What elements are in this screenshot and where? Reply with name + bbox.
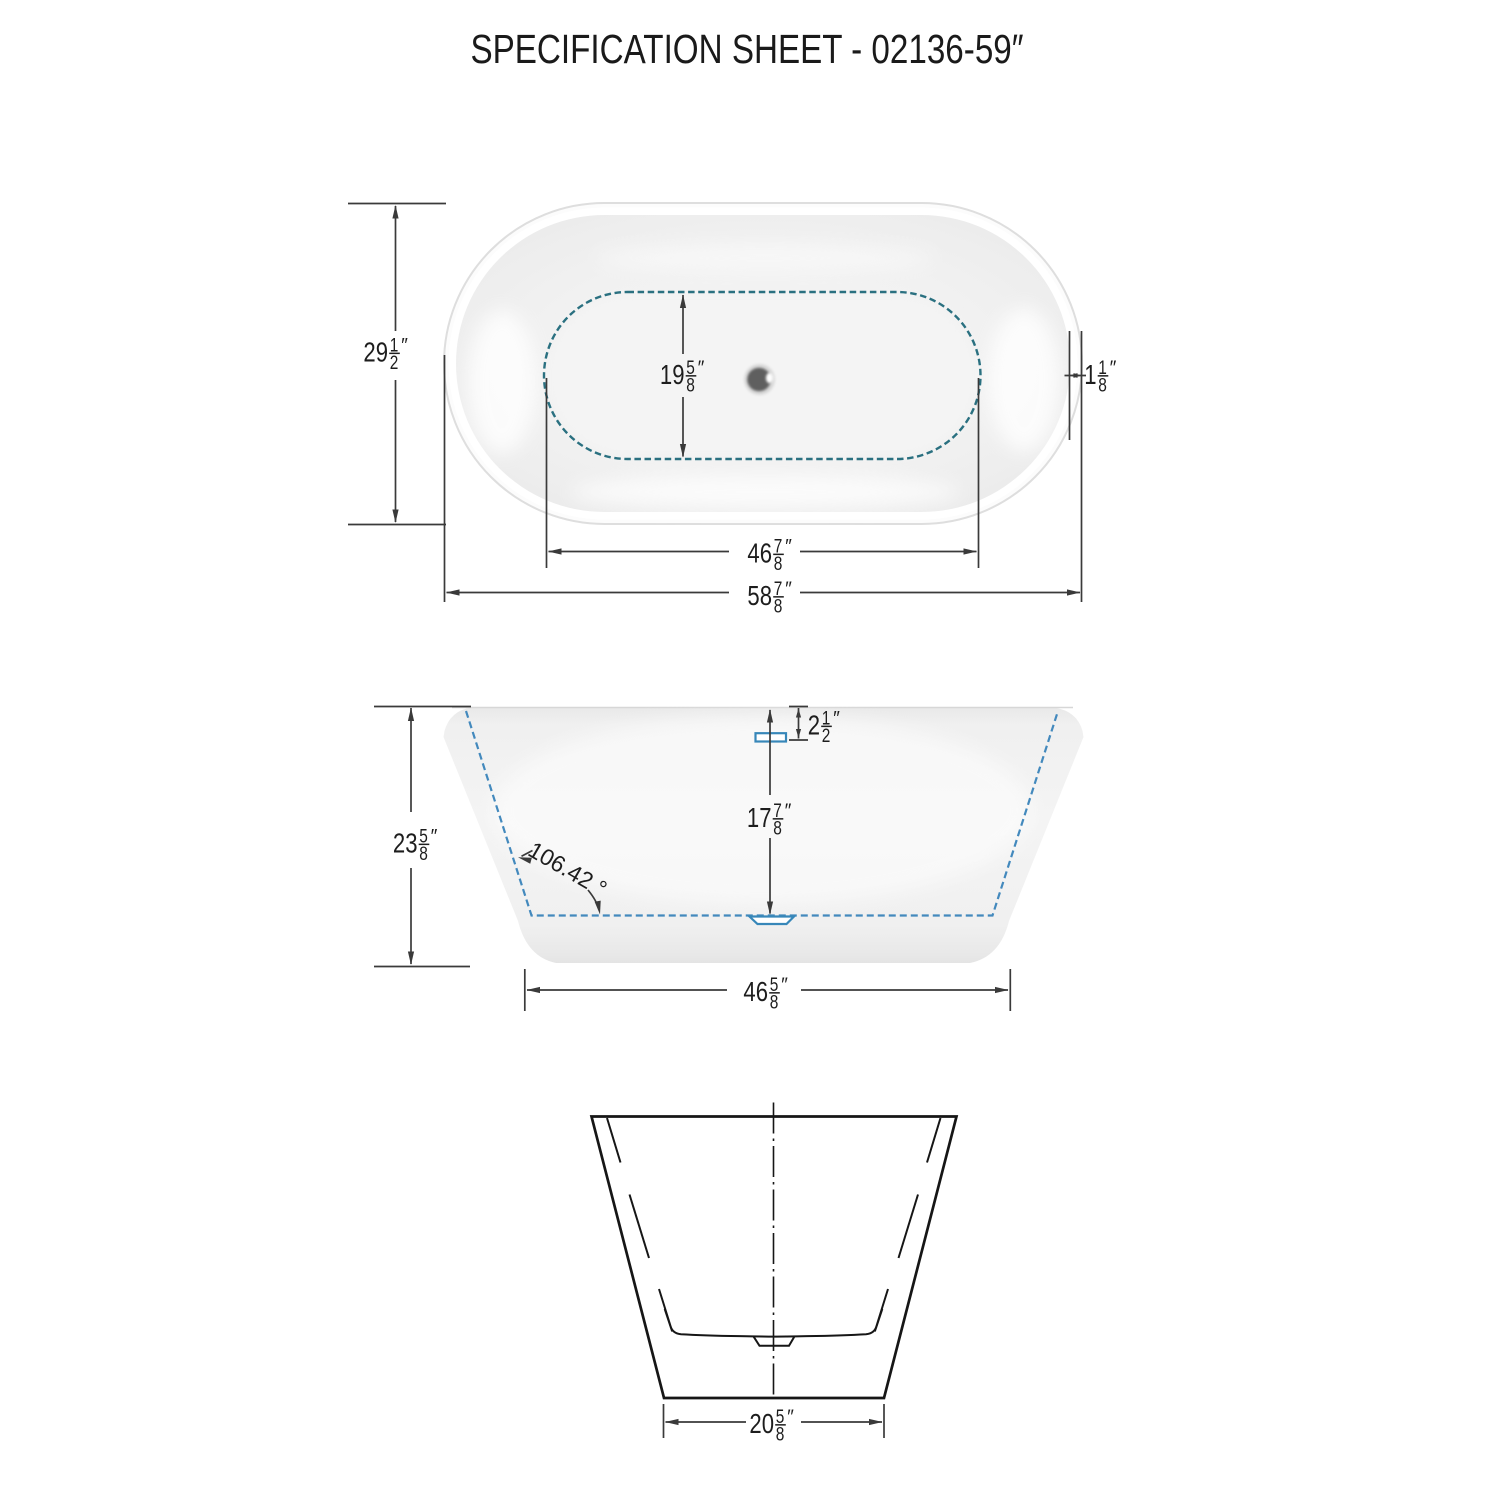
- svg-text:8: 8: [774, 596, 783, 617]
- svg-text:20: 20: [749, 1408, 774, 1439]
- svg-text:17: 17: [747, 802, 772, 833]
- svg-text:8: 8: [686, 375, 695, 396]
- svg-text:29: 29: [363, 337, 388, 368]
- svg-text:23: 23: [393, 828, 418, 859]
- svg-text:8: 8: [776, 1424, 785, 1445]
- svg-text:8: 8: [774, 554, 783, 575]
- svg-text:58: 58: [747, 580, 772, 611]
- svg-text:SPECIFICATION SHEET - 02136-59: SPECIFICATION SHEET - 02136-59″: [471, 26, 1024, 72]
- svg-text:19: 19: [660, 359, 685, 390]
- svg-text:8: 8: [1098, 375, 1107, 396]
- svg-text:46: 46: [743, 976, 768, 1007]
- svg-text:46: 46: [747, 538, 772, 569]
- svg-text:8: 8: [770, 992, 779, 1013]
- svg-text:2: 2: [808, 710, 820, 741]
- svg-text:2: 2: [390, 353, 399, 374]
- svg-text:1: 1: [1084, 359, 1096, 390]
- svg-text:2: 2: [822, 726, 831, 747]
- svg-text:8: 8: [773, 818, 782, 839]
- svg-text:8: 8: [419, 844, 428, 865]
